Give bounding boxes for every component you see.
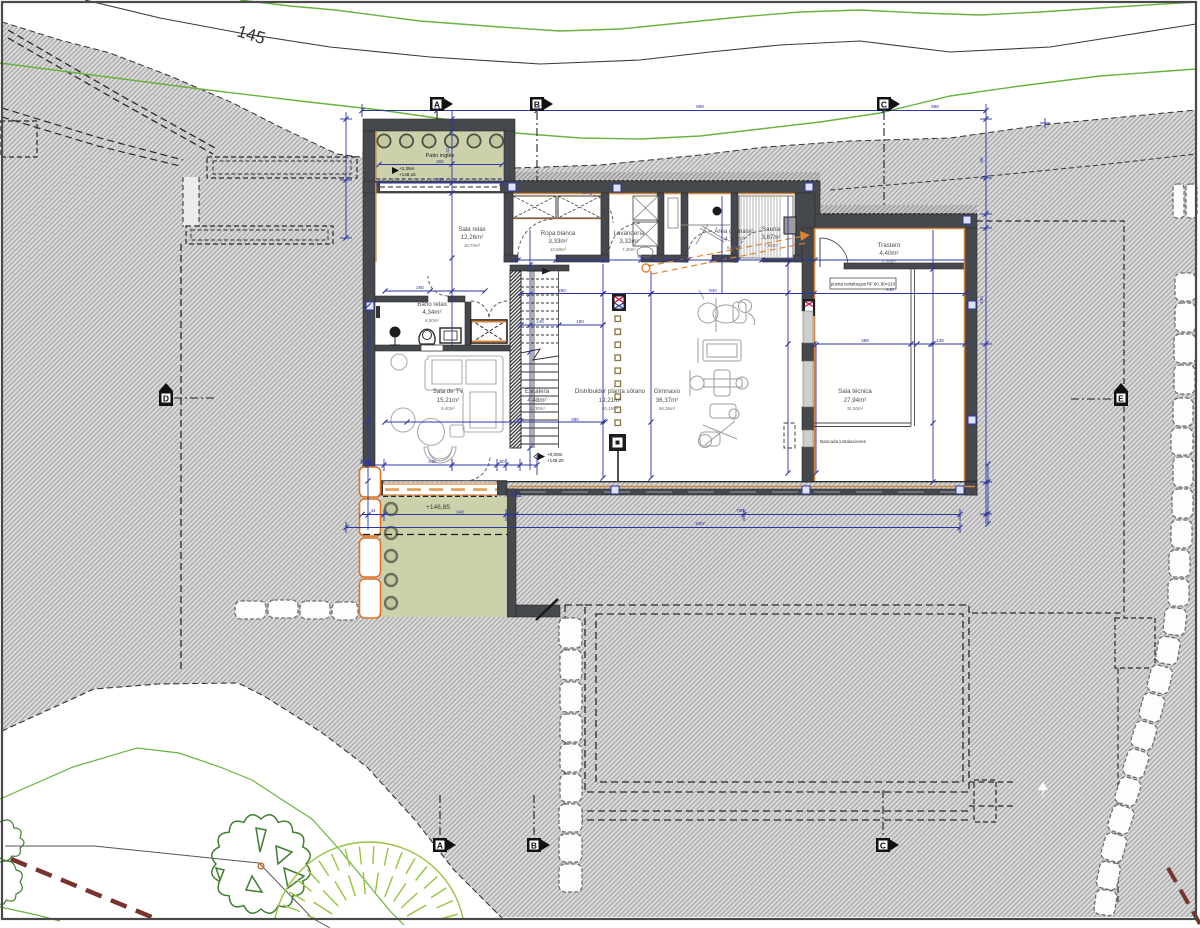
svg-text:15,21m²: 15,21m² <box>437 397 460 404</box>
svg-text:Trastero: Trastero <box>878 242 901 249</box>
svg-text:Sala relax: Sala relax <box>458 226 486 233</box>
svg-text:B: B <box>531 841 537 851</box>
svg-text:4,31m²: 4,31m² <box>724 236 743 243</box>
svg-text:90: 90 <box>499 459 505 464</box>
svg-text:348: 348 <box>456 510 464 515</box>
svg-text:138: 138 <box>936 338 944 343</box>
svg-text:Baño relax: Baño relax <box>417 301 447 308</box>
svg-text:A: A <box>437 841 443 851</box>
svg-text:430: 430 <box>979 296 984 304</box>
svg-text:puerta cortafuegos RF 60, 90×2: puerta cortafuegos RF 60, 90×210 <box>831 282 896 287</box>
svg-text:388: 388 <box>861 338 869 343</box>
svg-text:345: 345 <box>428 459 436 464</box>
svg-text:260: 260 <box>416 285 424 290</box>
svg-text:16,70m³: 16,70m³ <box>464 243 481 248</box>
svg-text:P11: P11 <box>510 492 522 499</box>
svg-text:7,84m³: 7,84m³ <box>764 243 778 248</box>
svg-text:20,16m³: 20,16m³ <box>602 406 619 411</box>
svg-text:Bancada instalaciones: Bancada instalaciones <box>820 439 867 444</box>
svg-text:360: 360 <box>436 177 444 182</box>
svg-text:+146,85: +146,85 <box>426 504 450 511</box>
svg-text:4,40m²: 4,40m² <box>879 250 898 257</box>
svg-text:12,26m²: 12,26m² <box>461 234 484 241</box>
svg-text:+146,20: +146,20 <box>547 458 564 463</box>
svg-text:180: 180 <box>576 319 584 324</box>
svg-text:19,21m²: 19,21m² <box>599 397 622 404</box>
svg-text:+2,35m: +2,35m <box>399 166 415 171</box>
svg-text:888: 888 <box>696 104 704 109</box>
svg-text:3,87m²: 3,87m² <box>761 234 780 241</box>
svg-text:32: 32 <box>445 147 450 153</box>
svg-text:440: 440 <box>886 287 894 292</box>
svg-text:27,94m²: 27,94m² <box>844 397 867 404</box>
svg-text:4,34m²: 4,34m² <box>422 309 441 316</box>
svg-text:7,48m³: 7,48m³ <box>622 247 636 252</box>
svg-text:Lavandería: Lavandería <box>614 230 646 237</box>
svg-text:D: D <box>163 394 169 404</box>
svg-text:8,50m³: 8,50m³ <box>425 318 439 323</box>
svg-text:3,33m²: 3,33m² <box>548 238 567 245</box>
svg-text:6,03m³: 6,03m³ <box>727 245 741 250</box>
svg-text:3,32m²: 3,32m² <box>619 238 638 245</box>
svg-text:140: 140 <box>536 319 544 324</box>
svg-text:C: C <box>880 841 886 851</box>
svg-text:+148,15: +148,15 <box>399 172 416 177</box>
svg-text:Sala de TV: Sala de TV <box>433 388 464 395</box>
svg-text:+0,00m: +0,00m <box>547 452 563 457</box>
svg-text:766: 766 <box>736 508 744 513</box>
svg-text:360: 360 <box>436 159 444 164</box>
svg-text:44: 44 <box>370 508 376 513</box>
svg-text:888: 888 <box>931 104 939 109</box>
svg-text:1807: 1807 <box>695 521 706 526</box>
svg-text:Sauna: Sauna <box>762 226 780 233</box>
svg-text:Distribuidor planta sótano: Distribuidor planta sótano <box>575 388 646 395</box>
svg-text:280: 280 <box>558 288 566 293</box>
svg-text:Ropa blanca: Ropa blanca <box>541 230 576 237</box>
svg-text:31,50m³: 31,50m³ <box>847 406 864 411</box>
svg-text:380: 380 <box>571 417 579 422</box>
svg-text:Gimnasio: Gimnasio <box>654 388 681 395</box>
svg-text:36,37m²: 36,37m² <box>656 397 679 404</box>
svg-text:Escalera: Escalera <box>525 388 550 395</box>
svg-text:88: 88 <box>979 157 984 163</box>
svg-text:Sala técnica: Sala técnica <box>838 388 872 395</box>
svg-text:13,08m³: 13,08m³ <box>550 247 567 252</box>
svg-text:56,35m³: 56,35m³ <box>659 406 676 411</box>
svg-text:Área gimnasio: Área gimnasio <box>714 228 754 235</box>
svg-text:940: 940 <box>709 288 717 293</box>
svg-text:11,30m³: 11,30m³ <box>529 406 545 411</box>
svg-text:E: E <box>1118 394 1124 404</box>
svg-text:5,40m³: 5,40m³ <box>441 406 455 411</box>
